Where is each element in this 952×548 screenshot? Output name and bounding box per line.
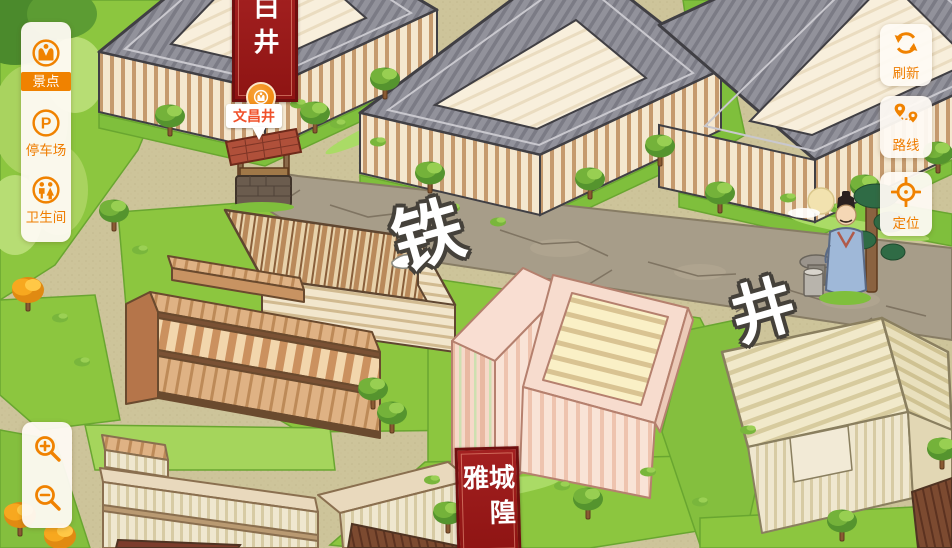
sidebar-menu: 景点 P 停车场 卫生间 bbox=[21, 22, 71, 242]
menu-item-scenic[interactable]: 景点 bbox=[21, 38, 71, 91]
zoom-controls bbox=[22, 422, 72, 528]
menu-item-toilet-label: 卫生间 bbox=[21, 209, 71, 226]
banner-top-text: 白井 bbox=[252, 0, 278, 95]
route-label: 路线 bbox=[880, 137, 932, 154]
zoom-in-button[interactable] bbox=[27, 431, 67, 471]
poi-pointer-icon bbox=[252, 127, 266, 140]
refresh-button[interactable]: 刷新 bbox=[880, 24, 932, 86]
zoom-out-icon bbox=[31, 481, 63, 518]
menu-item-scenic-label: 景点 bbox=[21, 72, 71, 91]
route-button[interactable]: 路线 bbox=[880, 96, 932, 158]
menu-item-parking-label: 停车场 bbox=[21, 142, 71, 159]
parking-icon: P bbox=[31, 108, 61, 138]
zoom-out-button[interactable] bbox=[27, 479, 67, 519]
route-icon bbox=[892, 101, 920, 134]
locate-button[interactable]: 定位 bbox=[880, 172, 932, 236]
poi-label[interactable]: 文昌井 bbox=[226, 104, 282, 128]
menu-item-parking[interactable]: P 停车场 bbox=[21, 108, 71, 159]
svg-text:P: P bbox=[41, 115, 52, 132]
menu-item-toilet[interactable]: 卫生间 bbox=[21, 175, 71, 226]
locate-label: 定位 bbox=[880, 215, 932, 232]
map-canvas[interactable]: 铁 井 白井 城隍雅 文昌井 景点 bbox=[0, 0, 952, 548]
banner-bottom: 城隍雅 bbox=[455, 446, 522, 548]
well-illustration bbox=[226, 129, 301, 212]
locate-icon bbox=[891, 177, 921, 212]
toilet-icon bbox=[31, 175, 61, 205]
zoom-in-icon bbox=[31, 432, 63, 469]
refresh-label: 刷新 bbox=[880, 65, 932, 82]
scenic-spot-icon bbox=[31, 38, 61, 68]
banner-bottom-text: 城隍雅 bbox=[461, 453, 515, 548]
refresh-icon bbox=[892, 29, 920, 62]
